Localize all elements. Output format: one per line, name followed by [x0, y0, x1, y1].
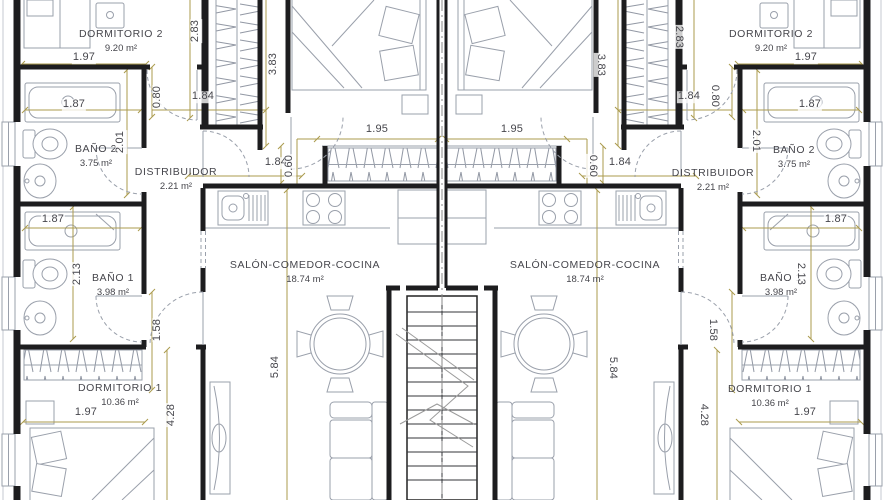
- apartment-unit: [2, 0, 441, 500]
- stove: [303, 191, 345, 225]
- floor-plan-page: DORMITORIO 29.20 m²BAÑO 23.75 m²DISTRIBU…: [0, 0, 890, 500]
- tv-unit: [210, 382, 230, 494]
- toilet: [23, 259, 67, 289]
- window: [2, 122, 15, 166]
- window: [2, 277, 15, 330]
- washbasin: [24, 301, 56, 335]
- bed-dormitorio1: [26, 401, 154, 500]
- dining-table: [297, 296, 383, 392]
- bed-dormitorio2: [24, 0, 124, 48]
- wardrobe: [24, 350, 142, 380]
- wardrobe: [322, 146, 437, 181]
- toilet: [23, 129, 67, 159]
- bed-principal: [292, 0, 428, 114]
- bathtub: [25, 83, 120, 122]
- wardrobe: [216, 0, 258, 125]
- apartment-unit-mirrored: [443, 0, 882, 500]
- wall-opening-dashed: [201, 231, 206, 268]
- kitchen-sink: [218, 191, 268, 225]
- floor-plan-drawing: [0, 0, 890, 500]
- sofa: [330, 402, 388, 500]
- window: [2, 434, 15, 486]
- washbasin: [24, 164, 56, 198]
- fridge: [398, 190, 438, 244]
